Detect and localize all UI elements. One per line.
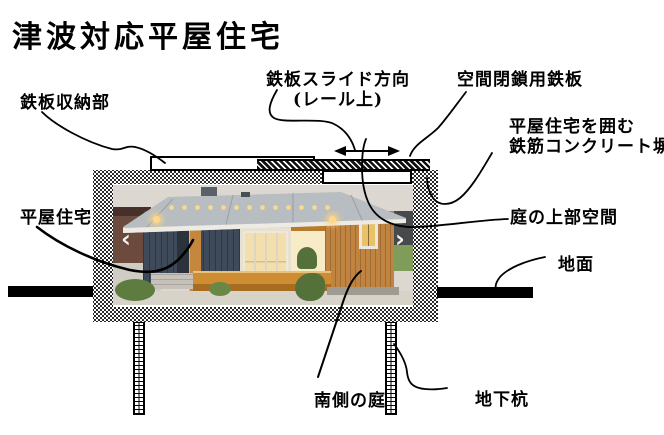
label-steel-plate-storage: 鉄板収納部 [20, 93, 110, 113]
label-slide-direction-line1: 鉄板スライド方向 [258, 70, 418, 90]
label-underground-pile: 地下杭 [475, 390, 529, 410]
underground-pile-left [133, 322, 145, 415]
label-slide-direction: 鉄板スライド方向 (レール上) [258, 70, 418, 110]
pointer-steel-plate-storage [42, 112, 165, 163]
shrub-right [295, 273, 325, 301]
carousel-prev-icon[interactable]: ‹ [121, 227, 131, 251]
label-surrounding-wall-line1: 平屋住宅を囲む [509, 117, 664, 137]
tsunami-house-diagram: 津波対応平屋住宅 鉄板収納部 鉄板スライド方向 (レール上) 空間閉鎖用鉄板 平… [0, 0, 664, 435]
pointer-space-closing-plate [410, 92, 466, 156]
ground-bar-left [8, 286, 93, 297]
porch-plant [297, 247, 317, 269]
label-south-garden: 南側の庭 [314, 391, 386, 411]
shrub-left [115, 279, 155, 301]
label-space-closing-plate: 空間閉鎖用鉄板 [457, 70, 583, 90]
ground-bar-right [437, 287, 533, 298]
porch-lamp-right [329, 216, 336, 223]
underground-pile-right [385, 322, 397, 415]
string-lights [165, 202, 331, 213]
carousel-next-icon[interactable]: › [395, 227, 405, 251]
label-surrounding-wall-line2: 鉄筋コンクリート塀 [509, 137, 664, 157]
page-title: 津波対応平屋住宅 [12, 12, 284, 56]
shrub-center [209, 282, 231, 296]
pointer-ground-surface [496, 257, 545, 289]
roof-graphic [113, 185, 413, 245]
house-photo: ‹ › [113, 185, 413, 305]
porch-lamp-left [153, 216, 160, 223]
label-ground-surface: 地面 [558, 255, 594, 275]
sliding-steel-plate [257, 159, 430, 171]
pointer-underground-pile [394, 344, 447, 389]
label-flat-house: 平屋住宅 [20, 208, 92, 228]
entry-steps [151, 273, 193, 289]
slide-arrow-head-right [388, 146, 400, 156]
gravel-strip [327, 287, 399, 295]
slide-arrow-head-left [334, 146, 346, 156]
label-slide-direction-line2: (レール上) [258, 90, 418, 110]
label-garden-upper-space: 庭の上部空間 [510, 208, 618, 228]
label-surrounding-wall: 平屋住宅を囲む 鉄筋コンクリート塀 [509, 117, 664, 157]
wall-top-opening [322, 170, 412, 184]
